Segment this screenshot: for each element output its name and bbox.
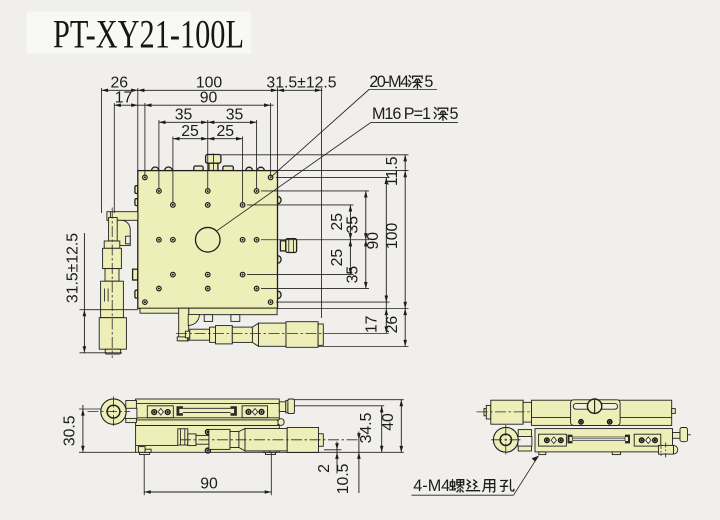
svg-text:2: 2 xyxy=(316,464,333,473)
svg-text:5: 5 xyxy=(450,105,459,123)
svg-text:10.5: 10.5 xyxy=(335,463,352,494)
svg-text:90: 90 xyxy=(365,232,382,250)
svg-text:25: 25 xyxy=(329,213,346,231)
svg-text:40: 40 xyxy=(380,413,397,431)
svg-text:17: 17 xyxy=(363,316,380,334)
svg-text:34.5: 34.5 xyxy=(358,412,375,443)
svg-text:90: 90 xyxy=(200,476,218,493)
svg-text:35: 35 xyxy=(345,266,362,284)
svg-text:100: 100 xyxy=(384,223,401,250)
svg-text:25: 25 xyxy=(181,123,199,140)
svg-text:20-M4: 20-M4 xyxy=(369,73,409,91)
svg-text:31.5±12.5: 31.5±12.5 xyxy=(64,233,81,303)
svg-text:35: 35 xyxy=(345,216,362,234)
svg-text:17: 17 xyxy=(115,90,133,107)
svg-text:11.5: 11.5 xyxy=(384,156,401,186)
svg-text:35: 35 xyxy=(175,107,193,124)
svg-text:M16 P=1: M16 P=1 xyxy=(372,105,431,123)
svg-text:31.5±12.5: 31.5±12.5 xyxy=(266,75,336,92)
svg-text:26: 26 xyxy=(384,316,401,334)
svg-text:25: 25 xyxy=(217,123,235,140)
svg-text:90: 90 xyxy=(200,90,218,107)
svg-text:4-M4: 4-M4 xyxy=(413,477,450,495)
svg-text:30.5: 30.5 xyxy=(61,415,78,446)
svg-text:35: 35 xyxy=(226,107,244,124)
svg-text:5: 5 xyxy=(424,73,433,91)
svg-text:25: 25 xyxy=(329,249,346,267)
svg-text:PT-XY21-100L: PT-XY21-100L xyxy=(53,12,244,57)
